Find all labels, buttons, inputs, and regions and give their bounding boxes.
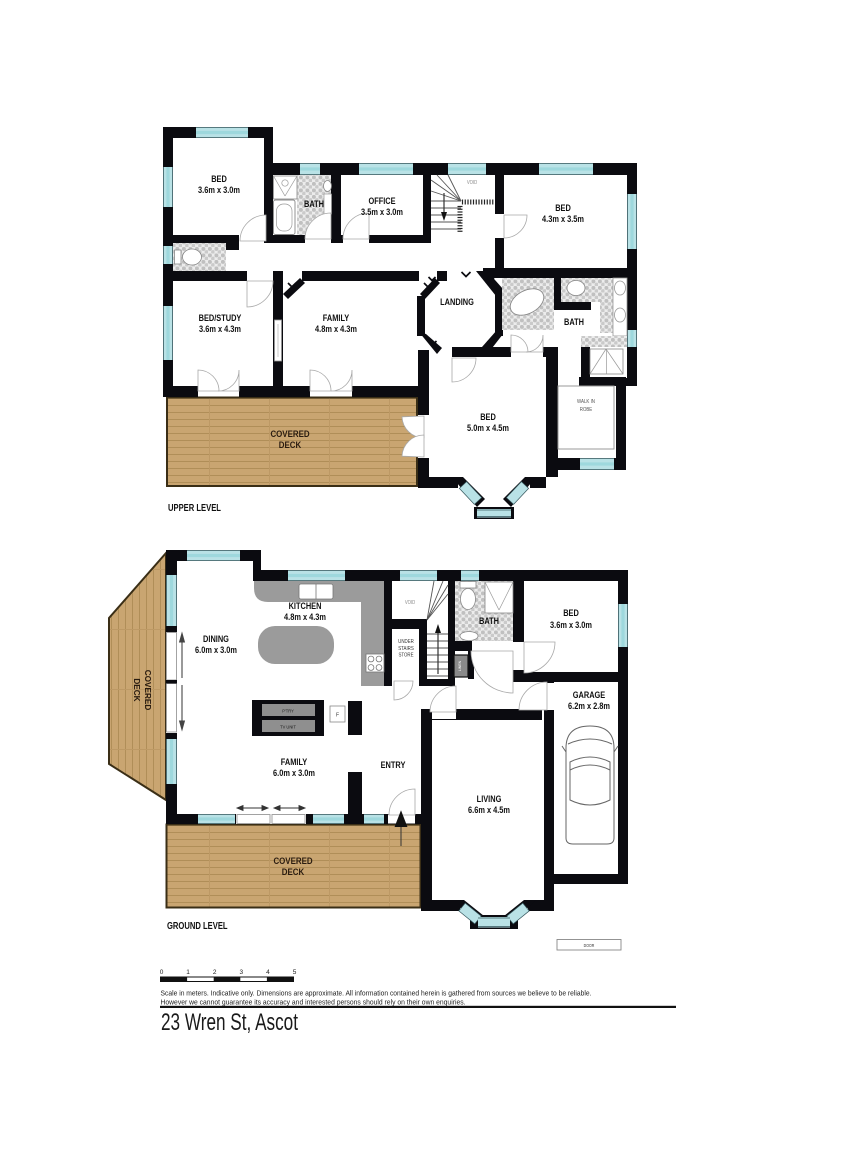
- svg-text:DECK: DECK: [132, 678, 141, 701]
- svg-text:F: F: [336, 713, 339, 719]
- svg-text:LINEN: LINEN: [458, 660, 462, 671]
- svg-text:GARAGE: GARAGE: [573, 689, 606, 700]
- svg-text:UNDER: UNDER: [398, 639, 414, 645]
- svg-text:0: 0: [160, 969, 164, 976]
- svg-text:Scale in meters. Indicative on: Scale in meters. Indicative only. Dimens…: [161, 991, 592, 998]
- svg-text:LANDING: LANDING: [440, 296, 474, 307]
- svg-text:ROBE: ROBE: [580, 407, 592, 413]
- svg-text:BATH: BATH: [564, 316, 584, 327]
- svg-text:BED: BED: [563, 607, 579, 618]
- svg-text:4: 4: [266, 969, 270, 976]
- svg-text:2: 2: [213, 969, 217, 976]
- svg-text:STAIRS: STAIRS: [398, 646, 414, 652]
- svg-text:4.8m x 4.3m: 4.8m x 4.3m: [284, 611, 326, 622]
- svg-text:BATH: BATH: [479, 615, 499, 626]
- svg-text:TV UNIT: TV UNIT: [280, 724, 296, 729]
- svg-text:6.2m x 2.8m: 6.2m x 2.8m: [568, 700, 610, 711]
- svg-text:LIVING: LIVING: [477, 793, 502, 804]
- svg-text:3.5m x 3.0m: 3.5m x 3.0m: [361, 206, 403, 217]
- svg-text:COVERED: COVERED: [270, 429, 309, 440]
- svg-text:FAMILY: FAMILY: [281, 756, 308, 767]
- svg-text:5.0m x 4.5m: 5.0m x 4.5m: [467, 422, 509, 433]
- svg-text:BATH: BATH: [304, 198, 324, 209]
- svg-text:1: 1: [186, 969, 190, 976]
- svg-text:BED: BED: [480, 411, 496, 422]
- svg-text:BED: BED: [211, 173, 227, 184]
- svg-text:5: 5: [293, 969, 297, 976]
- svg-text:23 Wren St, Ascot: 23 Wren St, Ascot: [161, 1009, 298, 1036]
- svg-text:VOID: VOID: [467, 180, 478, 185]
- svg-text:4.3m x 3.5m: 4.3m x 3.5m: [542, 213, 584, 224]
- svg-text:6.0m x 3.0m: 6.0m x 3.0m: [273, 767, 315, 778]
- svg-text:ENTRY: ENTRY: [381, 759, 406, 770]
- svg-text:4.8m x 4.3m: 4.8m x 4.3m: [315, 323, 357, 334]
- svg-text:GROUND LEVEL: GROUND LEVEL: [167, 920, 228, 931]
- svg-text:UPPER LEVEL: UPPER LEVEL: [168, 502, 222, 513]
- svg-text:3.6m x 3.0m: 3.6m x 3.0m: [198, 184, 240, 195]
- svg-text:DINING: DINING: [203, 633, 229, 644]
- svg-text:WALK IN: WALK IN: [577, 399, 595, 405]
- svg-text:VOID: VOID: [405, 600, 416, 605]
- svg-text:3.6m x 4.3m: 3.6m x 4.3m: [199, 323, 241, 334]
- svg-text:However we cannot guarantee it: However we cannot guarantee its accuracy…: [161, 1000, 466, 1007]
- svg-text:COVERED: COVERED: [143, 670, 152, 711]
- svg-text:DOOR: DOOR: [584, 943, 595, 948]
- svg-text:DECK: DECK: [282, 867, 304, 878]
- svg-text:STORE: STORE: [398, 652, 413, 658]
- svg-text:6.0m x 3.0m: 6.0m x 3.0m: [195, 644, 237, 655]
- svg-text:BED: BED: [555, 202, 571, 213]
- svg-text:P'TRY: P'TRY: [282, 708, 294, 713]
- svg-text:KITCHEN: KITCHEN: [289, 600, 322, 611]
- svg-text:BED/STUDY: BED/STUDY: [199, 312, 242, 323]
- svg-text:OFFICE: OFFICE: [368, 195, 395, 206]
- svg-text:DECK: DECK: [279, 440, 301, 451]
- svg-text:FAMILY: FAMILY: [323, 312, 350, 323]
- svg-text:6.6m x 4.5m: 6.6m x 4.5m: [468, 804, 510, 815]
- svg-text:COVERED: COVERED: [273, 856, 312, 867]
- svg-text:3: 3: [239, 969, 243, 976]
- svg-text:3.6m x 3.0m: 3.6m x 3.0m: [550, 619, 592, 630]
